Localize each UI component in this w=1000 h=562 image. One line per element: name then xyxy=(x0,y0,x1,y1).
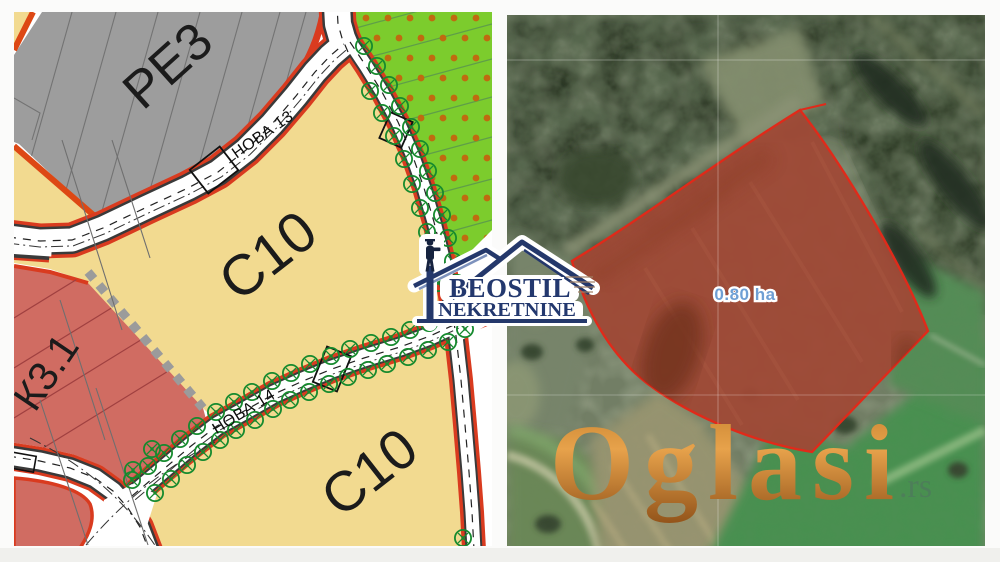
svg-text:0.80 ha: 0.80 ha xyxy=(714,285,775,304)
svg-text:Oglasi: Oglasi xyxy=(550,404,904,523)
svg-text:NEKRETNINE: NEKRETNINE xyxy=(438,299,576,321)
svg-text:.rs: .rs xyxy=(899,468,932,505)
